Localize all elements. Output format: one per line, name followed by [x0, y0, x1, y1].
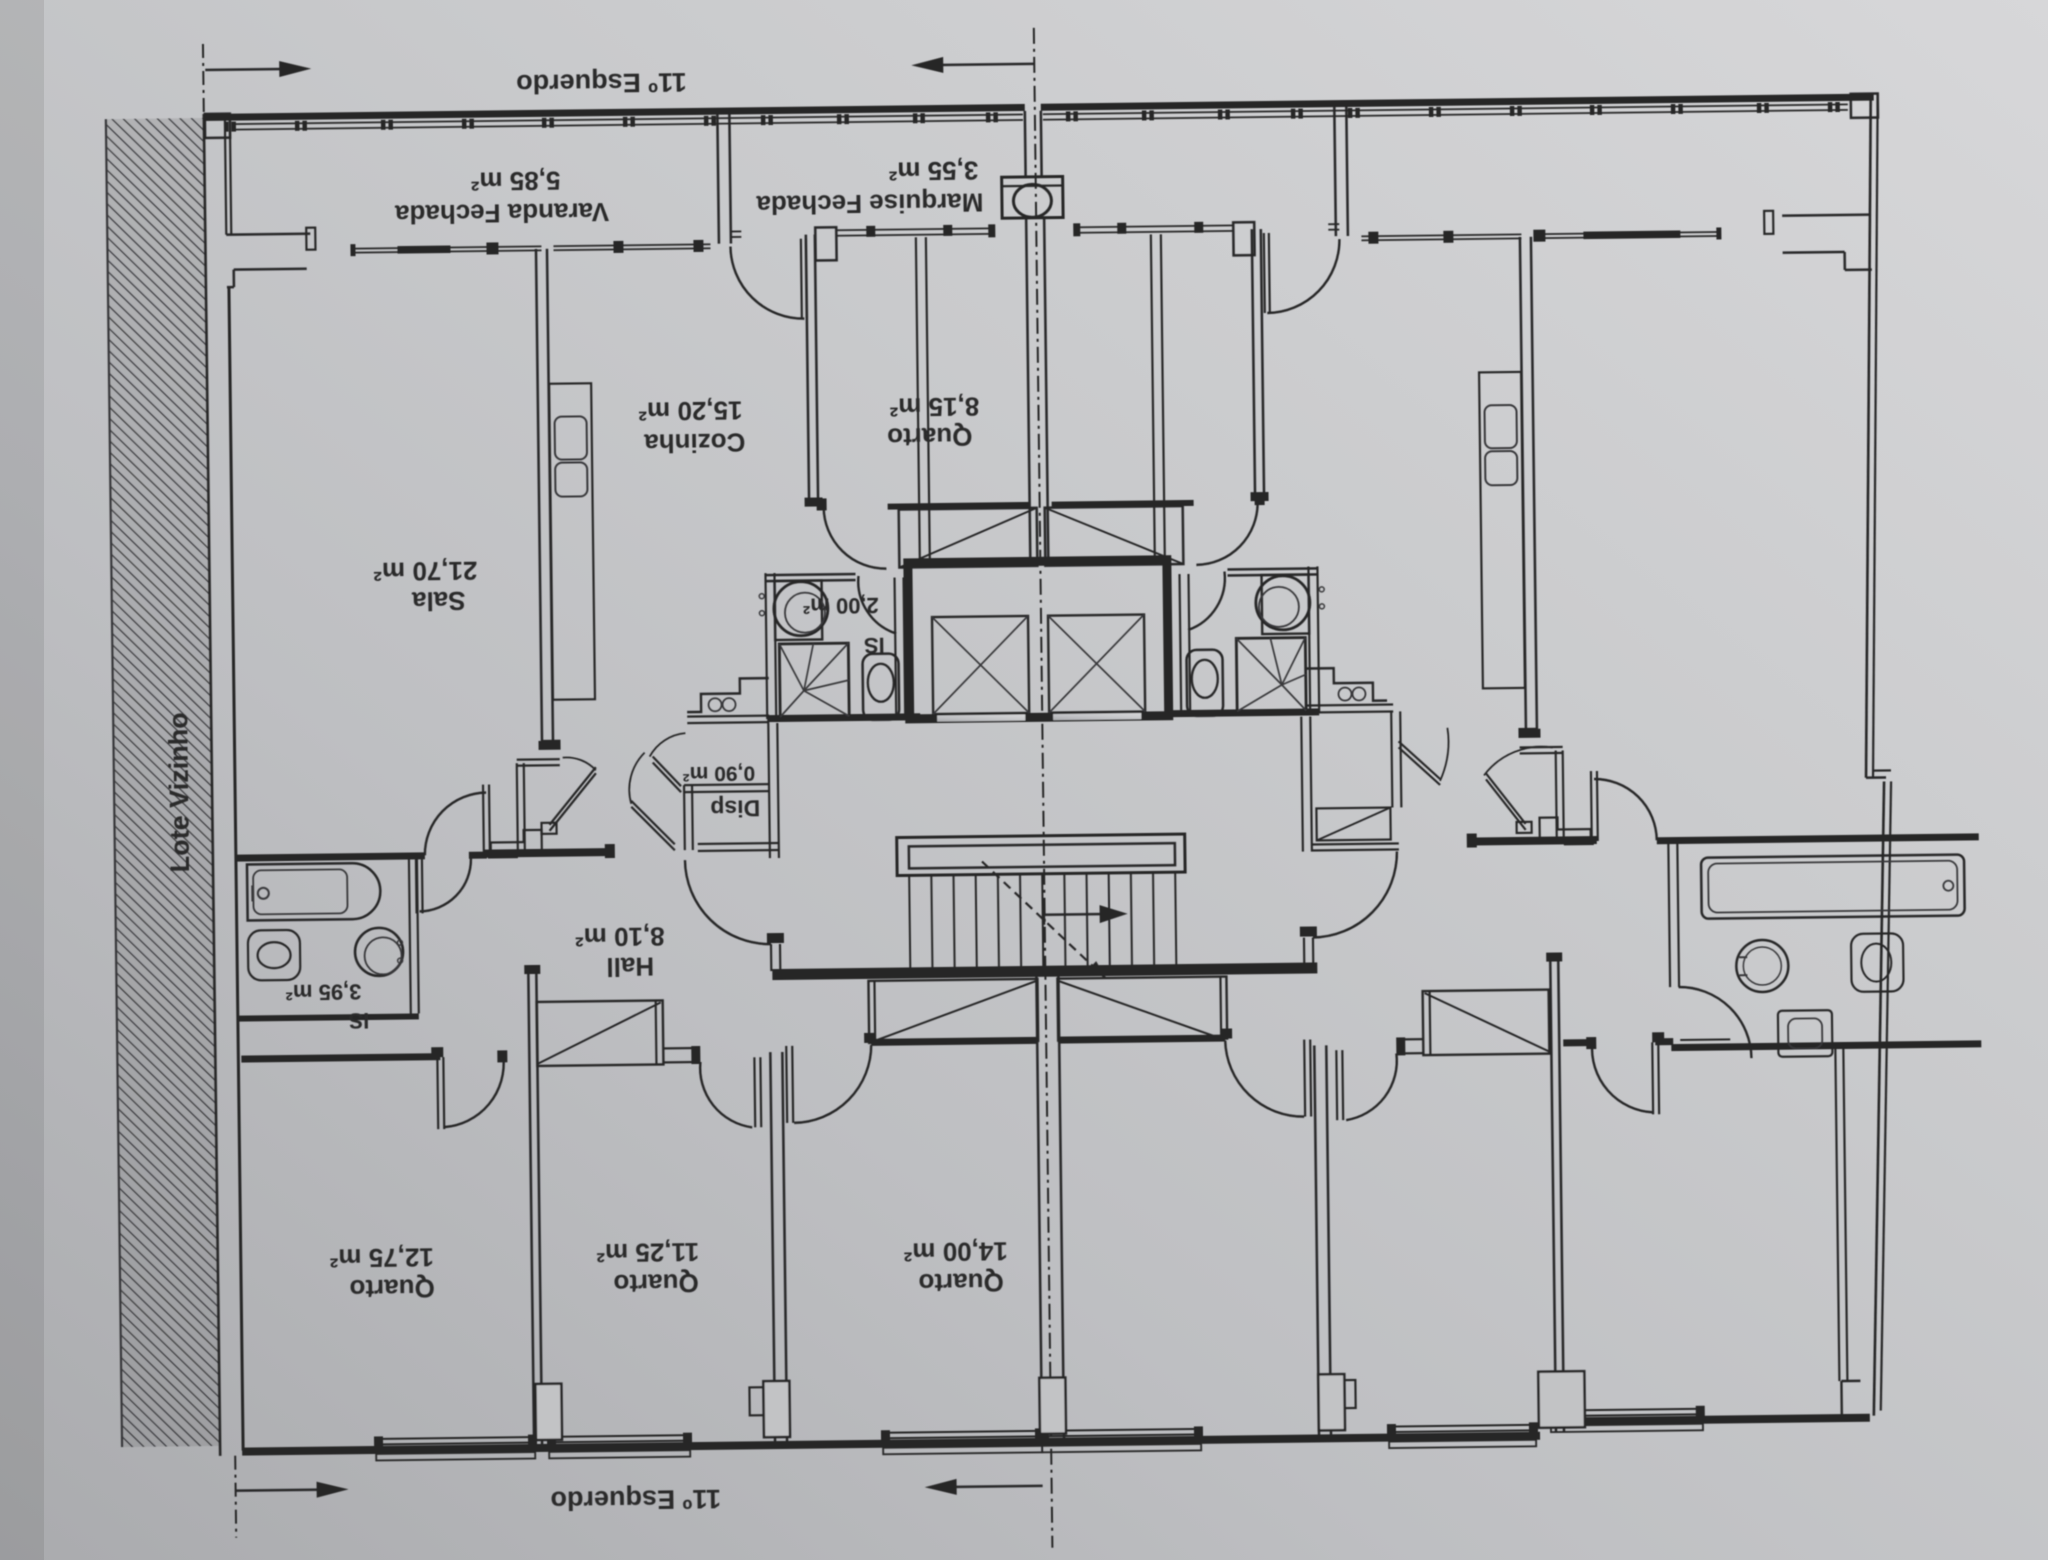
- svg-text:12,75 m²: 12,75 m²: [329, 1242, 434, 1273]
- svg-text:3,55 m²: 3,55 m²: [888, 156, 978, 187]
- svg-text:Disp: Disp: [710, 795, 760, 822]
- svg-text:2,00 m²: 2,00 m²: [803, 593, 879, 619]
- svg-text:Quarto: Quarto: [887, 422, 973, 453]
- svg-text:8,15 m²: 8,15 m²: [889, 392, 979, 423]
- svg-text:Quarto: Quarto: [349, 1273, 435, 1304]
- svg-text:11,25 m²: 11,25 m²: [596, 1237, 699, 1268]
- svg-text:0,90 m²: 0,90 m²: [683, 761, 756, 785]
- svg-text:Hall: Hall: [606, 952, 654, 983]
- svg-text:Quarto: Quarto: [918, 1267, 1004, 1298]
- svg-text:8,10 m²: 8,10 m²: [575, 921, 665, 952]
- svg-text:Marquise Fechada: Marquise Fechada: [756, 187, 984, 220]
- svg-text:IS: IS: [348, 1008, 369, 1033]
- svg-text:Lote Vizinho: Lote Vizinho: [163, 712, 195, 872]
- svg-text:21,70 m²: 21,70 m²: [373, 556, 478, 587]
- svg-text:Quarto: Quarto: [613, 1268, 699, 1299]
- svg-text:11º Esquerdo: 11º Esquerdo: [550, 1484, 721, 1516]
- svg-text:Sala: Sala: [411, 586, 465, 617]
- svg-text:5,85 m²: 5,85 m²: [470, 166, 560, 197]
- svg-text:Varanda Fechada: Varanda Fechada: [394, 197, 609, 230]
- svg-text:14,00 m²: 14,00 m²: [903, 1236, 1008, 1267]
- svg-text:15,20 m²: 15,20 m²: [638, 395, 743, 426]
- svg-text:11º Esquerdo: 11º Esquerdo: [516, 67, 687, 99]
- svg-text:IS: IS: [864, 633, 885, 658]
- svg-text:Cozinha: Cozinha: [644, 427, 746, 458]
- svg-text:3,95 m²: 3,95 m²: [285, 979, 361, 1005]
